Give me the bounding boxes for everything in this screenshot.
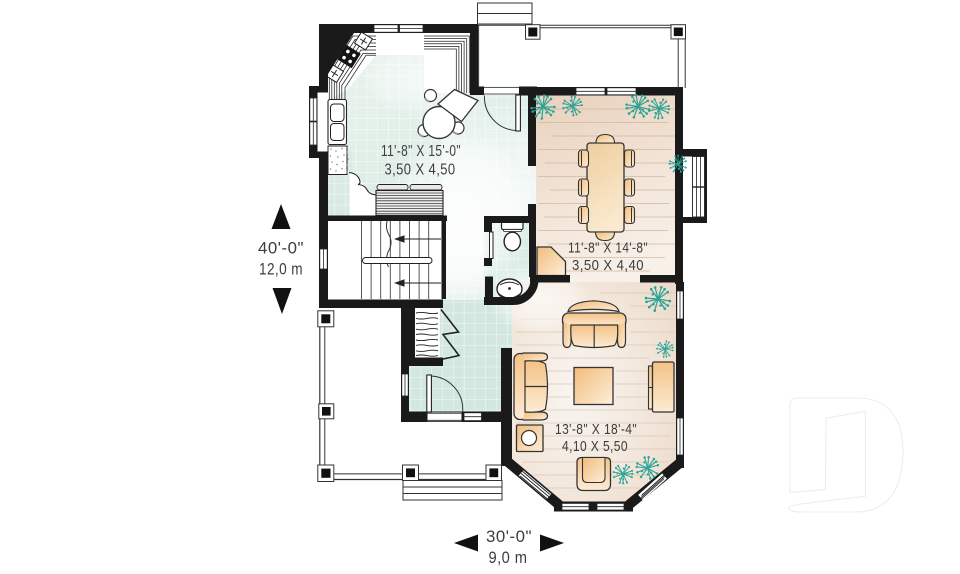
svg-text:11'-8" X 14'-8": 11'-8" X 14'-8" (568, 240, 648, 257)
svg-text:3,50 X 4,50: 3,50 X 4,50 (385, 162, 456, 179)
svg-text:30'-0": 30'-0" (486, 528, 532, 546)
svg-text:11'-8" X 15'-0": 11'-8" X 15'-0" (381, 143, 461, 160)
svg-text:9,0 m: 9,0 m (489, 549, 528, 567)
svg-text:4,10 X 5,50: 4,10 X 5,50 (562, 438, 628, 455)
svg-text:12,0 m: 12,0 m (259, 261, 303, 279)
svg-text:13'-8" X 18'-4": 13'-8" X 18'-4" (555, 421, 637, 438)
svg-text:3,50 X 4,40: 3,50 X 4,40 (572, 257, 644, 274)
svg-text:40'-0": 40'-0" (258, 240, 304, 258)
